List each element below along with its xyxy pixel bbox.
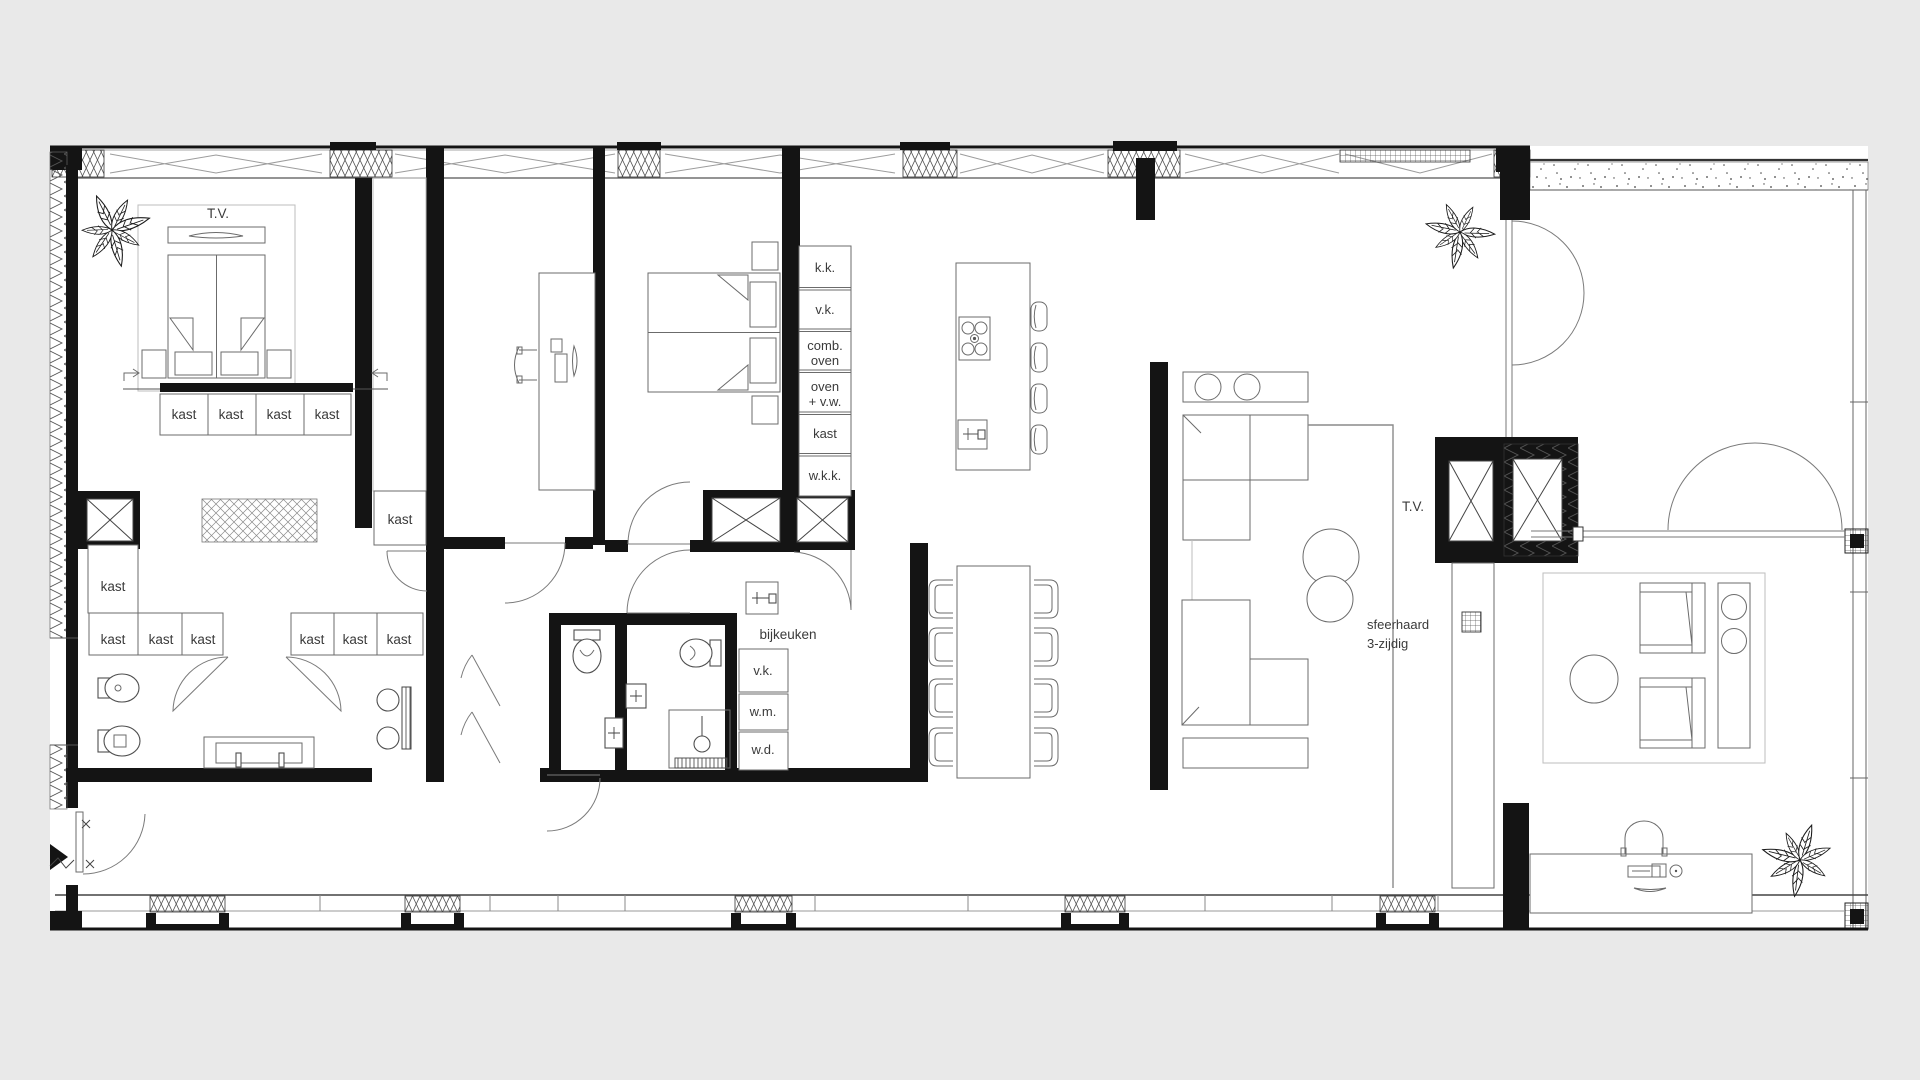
dining-chair	[929, 580, 953, 618]
wc2-toilet	[680, 639, 721, 667]
shaft-master	[76, 491, 140, 549]
label-sfeerhaard: sfeerhaard	[1367, 617, 1429, 632]
coffee-table	[1183, 738, 1308, 768]
bar-stool	[1031, 343, 1047, 372]
label-kast: kast	[300, 632, 325, 647]
label-bijkeuken: bijkeuken	[759, 627, 816, 642]
label-kast: kast	[101, 579, 126, 594]
shaft-kitchen	[703, 490, 855, 550]
armchair	[1640, 583, 1705, 653]
side-table	[1718, 583, 1750, 748]
dining-chair	[1034, 679, 1058, 717]
bar-stool	[1031, 384, 1047, 413]
pillow	[175, 352, 212, 375]
label-tv-master: T.V.	[207, 206, 229, 221]
kitchen-cabinet-column	[799, 246, 851, 496]
pillow	[750, 282, 776, 327]
label-kast: kast	[813, 426, 837, 441]
label-kast: kast	[267, 407, 292, 422]
label-tv-living: T.V.	[1402, 499, 1424, 514]
label-sfeerhaard2: 3-zijdig	[1367, 636, 1408, 651]
dining-chair	[1034, 628, 1058, 666]
terrace-band	[1530, 160, 1868, 190]
round-table	[1570, 655, 1618, 703]
dining-table	[957, 566, 1030, 778]
label-kast: kast	[343, 632, 368, 647]
pillow	[221, 352, 258, 375]
fireplace-icon	[1462, 612, 1481, 632]
basin	[377, 727, 399, 749]
wc1-toilet	[573, 630, 601, 673]
label-kast: kast	[149, 632, 174, 647]
label-wm: w.m.	[749, 704, 777, 719]
runner-rug	[202, 499, 317, 542]
label-comb-oven2: oven	[811, 353, 839, 368]
bar-stool	[1031, 302, 1047, 331]
label-comb-oven: comb.	[807, 338, 842, 353]
label-kast: kast	[315, 407, 340, 422]
bed-2	[648, 273, 780, 392]
dining-chair	[929, 628, 953, 666]
console-table	[1183, 372, 1308, 402]
towel-radiator	[402, 687, 411, 749]
bar-stool	[1031, 425, 1047, 454]
floor-plan-canvas: T.V. kast kast kast kast kast kast kast …	[0, 0, 1920, 1080]
dining-chair	[1034, 580, 1058, 618]
label-kast: kast	[172, 407, 197, 422]
armchair	[1640, 678, 1705, 748]
label-kast: kast	[191, 632, 216, 647]
elevator-block	[1435, 437, 1578, 563]
master-bed	[168, 255, 265, 378]
pouf	[1307, 576, 1353, 622]
tv-cabinet	[168, 227, 265, 243]
basin	[377, 689, 399, 711]
nightstand	[142, 350, 166, 378]
dining-chair	[929, 728, 953, 766]
toilet	[98, 726, 140, 756]
label-kk: k.k.	[815, 260, 835, 275]
dining-chair	[929, 679, 953, 717]
label-vk: v.k.	[815, 302, 834, 317]
label-kast: kast	[388, 512, 413, 527]
label-kast: kast	[219, 407, 244, 422]
nightstand	[752, 396, 778, 424]
nightstand	[752, 242, 778, 270]
label-kast: kast	[101, 632, 126, 647]
double-vanity	[204, 737, 314, 768]
label-wkk: w.k.k.	[808, 468, 842, 483]
label-wd: w.d.	[750, 742, 774, 757]
label-oven-vw2: + v.w.	[809, 394, 842, 409]
label-vk2: v.k.	[753, 663, 772, 678]
left-wall	[50, 152, 78, 913]
label-oven-vw: oven	[811, 379, 839, 394]
dining-chair	[1034, 728, 1058, 766]
nightstand	[267, 350, 291, 378]
label-kast: kast	[387, 632, 412, 647]
pillow	[750, 338, 776, 383]
entry-door-leaf	[76, 812, 83, 872]
bidet	[98, 674, 139, 702]
